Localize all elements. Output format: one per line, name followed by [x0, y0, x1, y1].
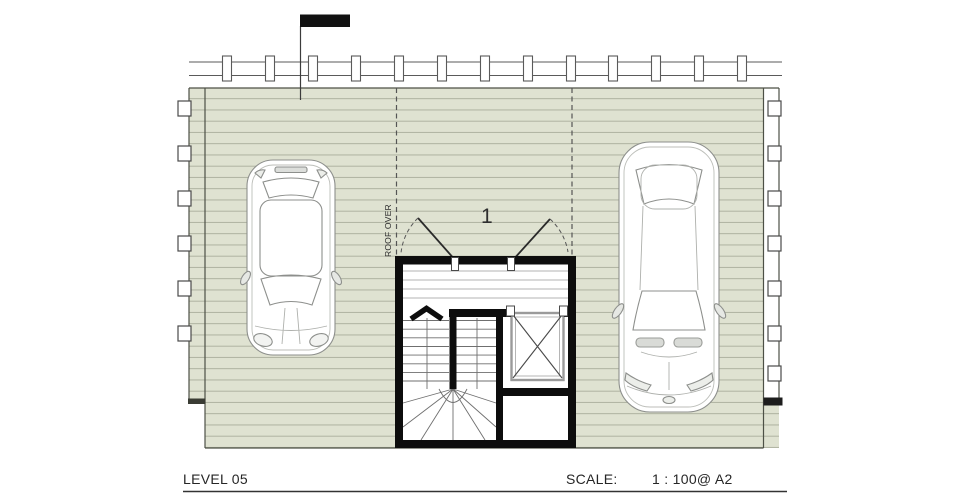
- floor-plan-drawing: ROOF OVER 1: [0, 0, 956, 500]
- scale-label: SCALE:: [566, 471, 618, 487]
- bracket: [178, 236, 191, 251]
- bracket: [178, 146, 191, 161]
- floor-plan-sheet: ROOF OVER 1: [0, 0, 956, 500]
- car-hatchback: [239, 160, 344, 355]
- car-sedan: [610, 142, 727, 412]
- bracket: [768, 101, 781, 116]
- deck-left-wall-cap: [188, 399, 206, 405]
- bracket: [178, 191, 191, 206]
- flag-marker: [300, 15, 350, 101]
- batten: [309, 56, 318, 81]
- batten: [524, 56, 533, 81]
- bracket: [768, 366, 781, 381]
- batten: [652, 56, 661, 81]
- bracket: [178, 281, 191, 296]
- core-wall-right: [568, 256, 576, 448]
- door-jamb: [508, 258, 515, 271]
- bracket: [768, 281, 781, 296]
- bracket: [768, 146, 781, 161]
- bracket: [768, 236, 781, 251]
- pergola-band: [189, 56, 782, 81]
- batten: [481, 56, 490, 81]
- core-wall-bottom: [395, 440, 576, 448]
- batten: [395, 56, 404, 81]
- bracket: [178, 101, 191, 116]
- elevator-bottom-wall: [503, 388, 568, 396]
- batten: [352, 56, 361, 81]
- bracket: [768, 191, 781, 206]
- level-label: LEVEL 05: [183, 471, 248, 487]
- bracket: [768, 326, 781, 341]
- flag-icon: [300, 15, 350, 28]
- elevator-jamb: [507, 306, 515, 316]
- car-cowl-vent-right: [674, 338, 702, 347]
- batten: [609, 56, 618, 81]
- roof-over-label: ROOF OVER: [383, 204, 393, 257]
- door-jamb: [452, 258, 459, 271]
- batten: [438, 56, 447, 81]
- bracket: [178, 326, 191, 341]
- batten: [695, 56, 704, 81]
- car-rear-bar: [275, 167, 307, 173]
- batten: [567, 56, 576, 81]
- batten: [738, 56, 747, 81]
- scale-value: 1 : 100@ A2: [652, 471, 733, 487]
- core-wall-left: [395, 256, 403, 448]
- batten: [266, 56, 275, 81]
- deck-right-wall-cap: [764, 398, 783, 406]
- title-block: LEVEL 05 SCALE: 1 : 100@ A2: [183, 471, 787, 492]
- stair-spine-wall: [450, 309, 457, 389]
- elevator-left-wall: [496, 309, 503, 440]
- stair-number-label: 1: [481, 205, 493, 228]
- car-front-emblem: [663, 397, 675, 404]
- batten: [223, 56, 232, 81]
- elevator-jamb: [560, 306, 568, 316]
- stair-core: [395, 256, 576, 448]
- elevator: [512, 313, 564, 380]
- core-wall-top: [395, 256, 576, 265]
- car-cowl-vent-left: [636, 338, 664, 347]
